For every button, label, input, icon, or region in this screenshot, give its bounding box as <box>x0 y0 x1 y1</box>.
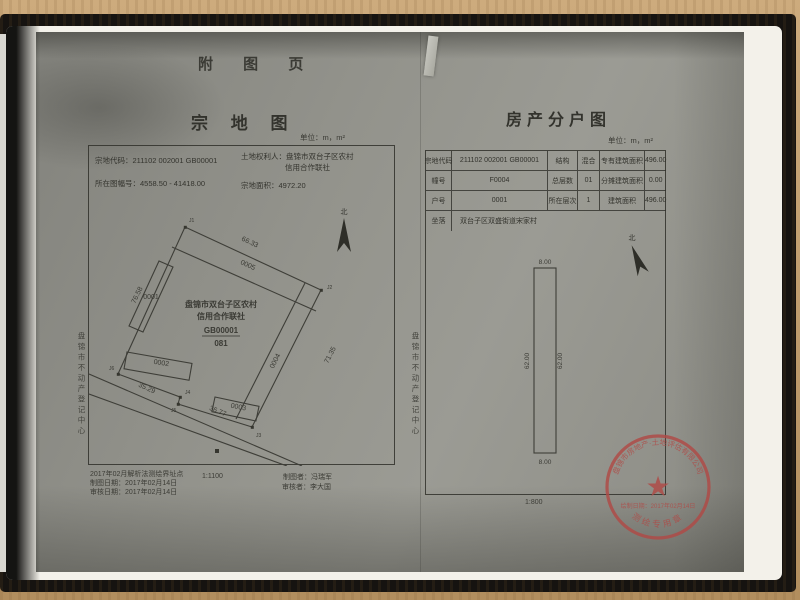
table-label: 结构 <box>548 151 578 171</box>
building-label-0005: 0005 <box>239 259 256 272</box>
corner-label-j6: J6 <box>109 366 115 372</box>
map-sheet-number: 所在图幅号：4558.50 - 41418.00 <box>95 178 205 189</box>
table-value: 0001 <box>452 191 548 211</box>
location-value: 双台子区双盛街道宋家村 <box>452 211 666 231</box>
north-label: 北 <box>341 208 348 216</box>
parcel-map-title: 宗 地 图 <box>191 109 296 134</box>
road-line-1 <box>89 374 302 466</box>
building-label-0003: 0003 <box>230 403 247 413</box>
road-point-marker <box>215 449 219 453</box>
parcel-sub-number: 081 <box>214 339 228 348</box>
north-label: 北 <box>629 234 636 242</box>
dimension-right: 62.00 <box>557 352 564 369</box>
registry-center-side-text-left: 盘锦市不动产登记中心 <box>76 332 87 437</box>
land-rights-holder: 土地权利人：盘锦市双台子区农村 信用合作联社 <box>241 151 354 173</box>
table-label: 总层数 <box>548 171 578 191</box>
reviewer-name: 审核者：李大国 <box>282 482 331 492</box>
parcel-map-unit: 单位：m，m² <box>300 132 345 143</box>
table-value: 496.00 <box>645 151 666 171</box>
dimension-top: 8.00 <box>539 259 552 266</box>
seal-company-arc-text: 盘锦市房地产·土地评估有限公司 <box>610 437 705 476</box>
north-arrow-icon <box>337 218 351 252</box>
corner-label-j4: J4 <box>185 390 191 396</box>
photo-background: 附 图 页 宗 地 图 单位：m，m² 宗地代码：211102 002001 G… <box>0 0 800 600</box>
paper-scrap <box>424 36 439 77</box>
table-label: 所在层次 <box>548 191 578 211</box>
owner-name-line1: 盘锦市双台子区农村 <box>185 299 257 309</box>
household-map-unit: 单位：m，m² <box>608 135 653 146</box>
table-label: 专有建筑面积 <box>600 151 645 171</box>
dimension-bottom: 8.00 <box>539 459 552 466</box>
household-info-table: 宗地代码 211102 002001 GB00001 结构 混合 专有建筑面积 … <box>426 151 665 231</box>
corner-label-j1: J1 <box>189 218 195 224</box>
fold-line <box>420 32 421 572</box>
page-edge-sliver <box>0 34 6 572</box>
table-label: 幢号 <box>426 171 452 191</box>
table-value: 496.00 <box>645 191 666 211</box>
scanned-page: 附 图 页 宗 地 图 单位：m，m² 宗地代码：211102 002001 G… <box>36 32 744 572</box>
svg-text:盘锦市房地产·土地评估有限公司: 盘锦市房地产·土地评估有限公司 <box>610 437 705 476</box>
edge-length-bottom-1: 35.29 <box>137 382 156 396</box>
owner-name-line2: 信用合作联社 <box>197 311 245 321</box>
table-value: 混合 <box>578 151 600 171</box>
table-value: 01 <box>578 171 600 191</box>
building-label-0001: 0001 <box>143 294 159 301</box>
road-line-2 <box>89 394 287 466</box>
corner-label-j3: J3 <box>256 433 262 439</box>
parcel-map-scale: 1:1100 <box>202 473 223 480</box>
table-label: 坐落 <box>426 211 452 231</box>
seal-bottom-arc-text: 测绘专用章 <box>630 511 686 529</box>
table-label: 宗地代码 <box>426 151 452 171</box>
table-value: 211102 002001 GB00001 <box>452 151 548 171</box>
parcel-drawing: J1 J2 J3 J4 J5 J6 66.33 0005 76.58 0001 … <box>89 204 394 466</box>
table-value: F0004 <box>452 171 548 191</box>
table-value: 1 <box>578 191 600 211</box>
household-map-title: 房产分户图 <box>506 106 611 130</box>
unit-outline <box>534 268 556 453</box>
parcel-map-frame: 宗地代码：211102 002001 GB00001 土地权利人：盘锦市双台子区… <box>88 145 395 465</box>
table-label: 分摊建筑面积 <box>600 171 645 191</box>
table-value: 0.00 <box>645 171 666 191</box>
surveying-seal: ★ 盘锦市房地产·土地评估有限公司 绘制日期：2017年02月14日 测绘专用章 <box>603 432 713 542</box>
registry-center-side-text-right: 盘锦市不动产登记中心 <box>410 332 421 437</box>
page-title: 附 图 页 <box>198 53 316 74</box>
edge-length-top: 66.33 <box>240 236 259 250</box>
table-label: 建筑面积 <box>600 191 645 211</box>
seal-date-text: 绘制日期：2017年02月14日 <box>621 502 696 510</box>
drafter-name: 制图者：冯瑞军 <box>283 472 332 482</box>
svg-text:测绘专用章: 测绘专用章 <box>630 511 686 529</box>
table-label: 户号 <box>426 191 452 211</box>
household-map-scale: 1:800 <box>525 499 543 506</box>
building-label-0004: 0004 <box>269 353 282 370</box>
parcel-code: 宗地代码：211102 002001 GB00001 <box>95 155 217 166</box>
corner-label-j5: J5 <box>171 408 177 414</box>
edge-length-right: 71.35 <box>324 346 338 365</box>
building-label-0002: 0002 <box>153 359 170 368</box>
seal-star-icon: ★ <box>645 471 670 502</box>
review-date: 审核日期：2017年02月14日 <box>90 487 177 497</box>
dimension-left: 62.00 <box>524 352 531 369</box>
corner-label-j2: J2 <box>327 285 333 291</box>
north-arrow-icon <box>626 243 649 276</box>
parcel-code-label: GB00001 <box>204 326 239 335</box>
parcel-area: 宗地面积：4972.20 <box>241 180 306 191</box>
